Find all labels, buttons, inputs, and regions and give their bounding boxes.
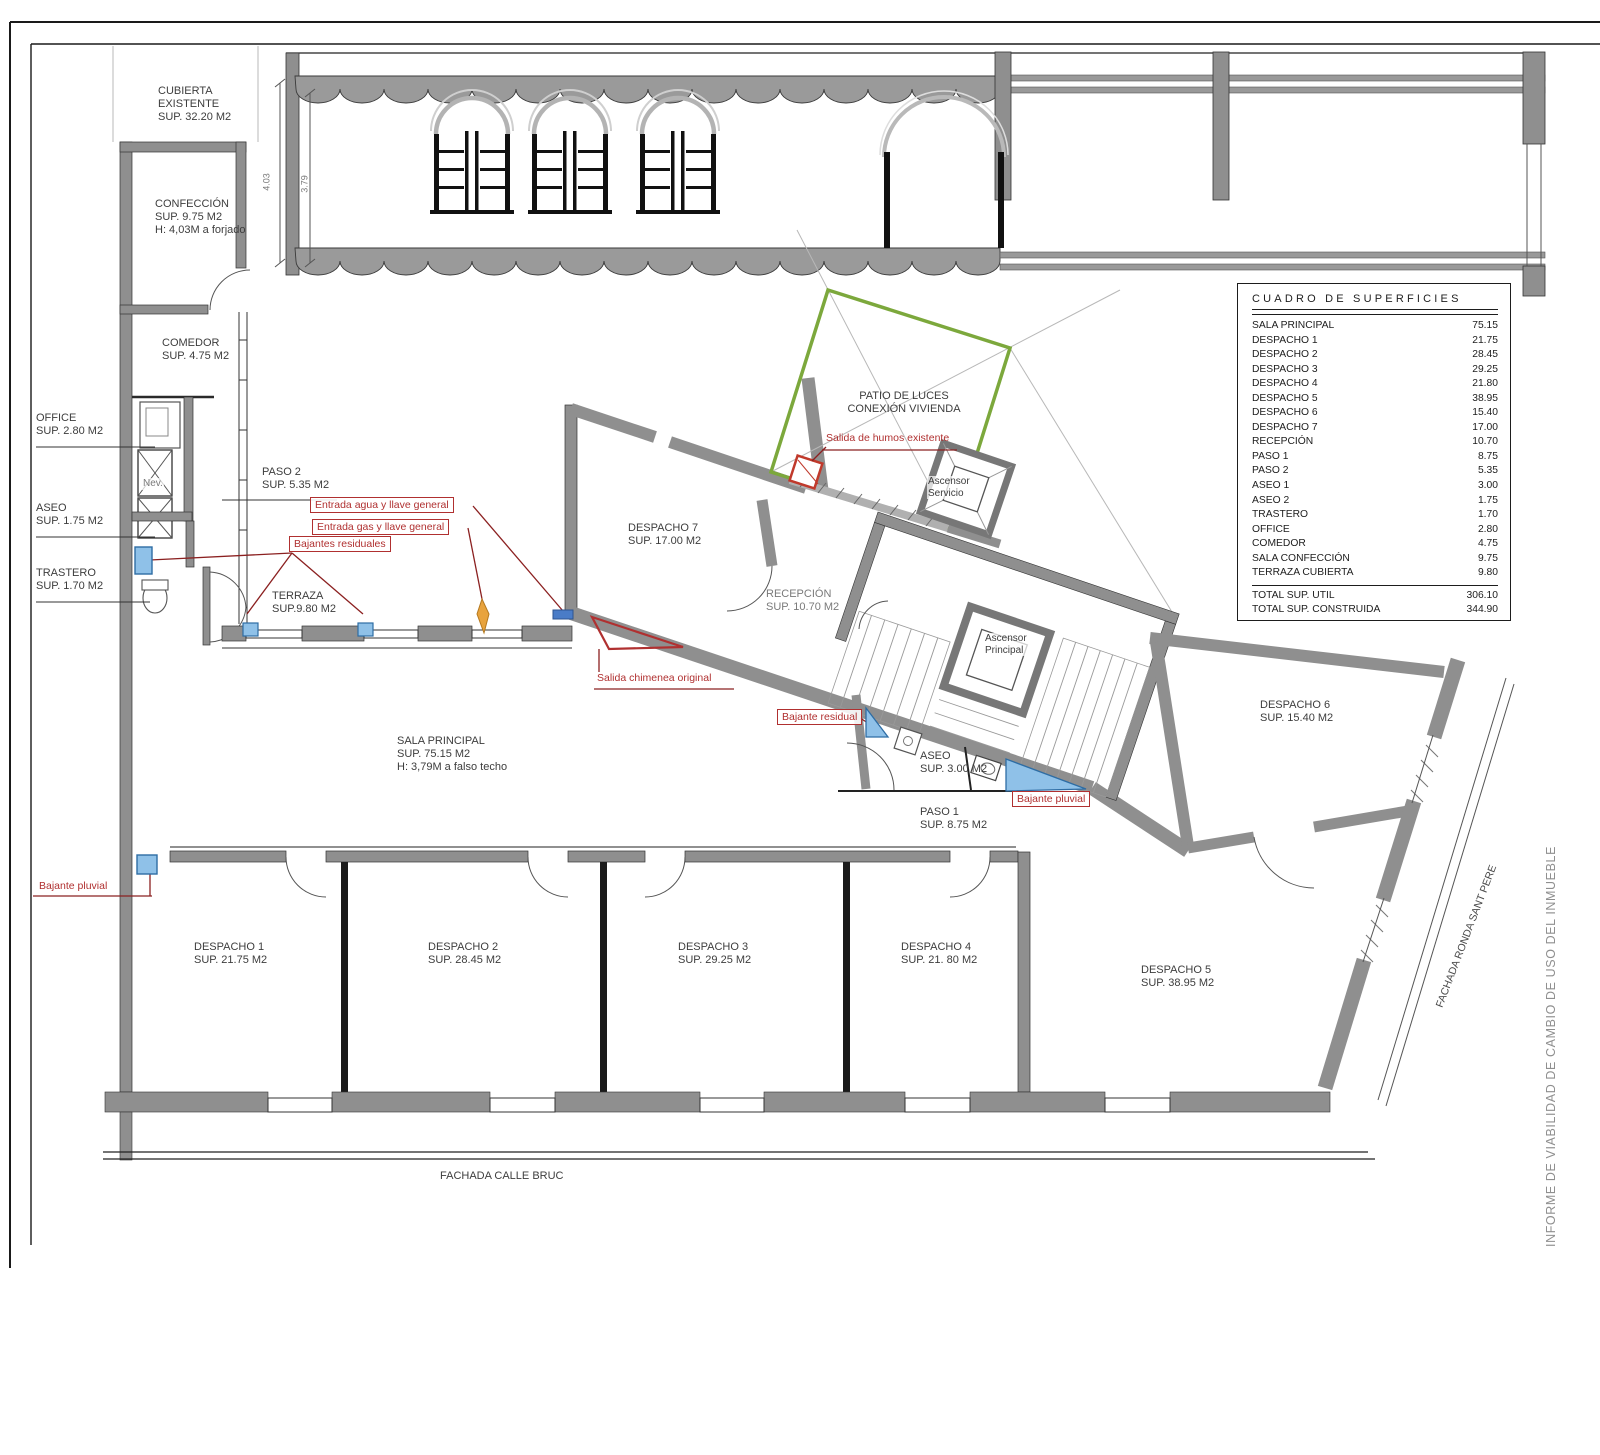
table-row-name: PASO 1 (1252, 450, 1288, 465)
sheet-side-note: INFORME DE VIABILIDAD DE CAMBIO DE USO D… (1544, 742, 1561, 1247)
annotation-bajante-residual: Bajante residual (777, 709, 862, 725)
room-label-cubierta: CUBIERTA EXISTENTE SUP. 32.20 M2 (158, 85, 231, 124)
annotation-salida-chimenea: Salida chimenea original (597, 672, 711, 684)
room-label-aseo-left: ASEO SUP. 1.75 M2 (36, 502, 103, 528)
table-row-value: 5.35 (1478, 464, 1498, 479)
table-total-util: TOTAL SUP. UTIL 306.10 (1252, 589, 1498, 604)
annotation-entrada-gas: Entrada gas y llave general (312, 519, 449, 535)
table-row-name: TERRAZA CUBIERTA (1252, 566, 1353, 581)
table-row-name: DESPACHO 7 (1252, 421, 1318, 436)
table-row: PASO 25.35 (1252, 464, 1498, 479)
table-row-value: 29.25 (1472, 363, 1498, 378)
annotation-salida-humos: Salida de humos existente (826, 432, 949, 444)
room-label-despacho6: DESPACHO 6 SUP. 15.40 M2 (1260, 699, 1333, 725)
bajante-marker-pluvial-left (137, 855, 157, 874)
table-row: SALA CONFECCIÓN9.75 (1252, 552, 1498, 567)
annotation-bajante-pluvial-right: Bajante pluvial (1012, 791, 1090, 807)
planter-marker-1 (243, 623, 258, 636)
table-row-value: 4.75 (1478, 537, 1498, 552)
bruc-facade (103, 1092, 1375, 1160)
gas-inlet-marker (477, 599, 489, 633)
room-label-paso2: PASO 2 SUP. 5.35 M2 (262, 466, 329, 492)
table-row-name: ASEO 2 (1252, 494, 1289, 509)
surface-table-rule (1252, 309, 1498, 315)
table-row-value: 28.45 (1472, 348, 1498, 363)
table-row: ASEO 21.75 (1252, 494, 1498, 509)
table-row: SALA PRINCIPAL75.15 (1252, 319, 1498, 334)
room-label-despacho7: DESPACHO 7 SUP. 17.00 M2 (628, 522, 701, 548)
table-row: DESPACHO 228.45 (1252, 348, 1498, 363)
table-row-value: 2.80 (1478, 523, 1498, 538)
table-row-name: DESPACHO 4 (1252, 377, 1318, 392)
arched-window-2 (528, 90, 612, 214)
label-ascensor-principal: Ascensor Principal (984, 633, 1028, 656)
table-row: PASO 18.75 (1252, 450, 1498, 465)
table-row: RECEPCIÓN10.70 (1252, 435, 1498, 450)
table-row-value: 21.80 (1472, 377, 1498, 392)
table-row-value: 9.75 (1478, 552, 1498, 567)
dimension-4-03: 4.03 (261, 161, 273, 191)
room-label-despacho5: DESPACHO 5 SUP. 38.95 M2 (1141, 964, 1214, 990)
table-row: OFFICE2.80 (1252, 523, 1498, 538)
room-label-terraza: TERRAZA SUP.9.80 M2 (272, 590, 336, 616)
facade-label-bruc: FACHADA CALLE BRUC (440, 1170, 563, 1183)
table-row: DESPACHO 538.95 (1252, 392, 1498, 407)
arched-window-3 (636, 90, 720, 214)
table-total-construida: TOTAL SUP. CONSTRUIDA 344.90 (1252, 603, 1498, 618)
room-label-despacho2: DESPACHO 2 SUP. 28.45 M2 (428, 941, 501, 967)
annotation-entrada-agua: Entrada agua y llave general (310, 497, 454, 513)
room-label-office: OFFICE SUP. 2.80 M2 (36, 412, 103, 438)
table-row-value: 15.40 (1472, 406, 1498, 421)
table-row: DESPACHO 615.40 (1252, 406, 1498, 421)
table-row-name: SALA CONFECCIÓN (1252, 552, 1350, 567)
surface-table-separator (1252, 585, 1498, 586)
room-label-comedor: COMEDOR SUP. 4.75 M2 (162, 337, 229, 363)
room-label-despacho3: DESPACHO 3 SUP. 29.25 M2 (678, 941, 751, 967)
planter-marker-2 (358, 623, 373, 636)
table-row-name: OFFICE (1252, 523, 1290, 538)
table-row: DESPACHO 329.25 (1252, 363, 1498, 378)
table-row: DESPACHO 421.80 (1252, 377, 1498, 392)
table-row-name: DESPACHO 5 (1252, 392, 1318, 407)
room-label-recepcion: RECEPCIÓN SUP. 10.70 M2 (766, 588, 839, 614)
arch-doorway (880, 91, 1008, 248)
annotation-bajantes-residuales: Bajantes residuales (289, 536, 391, 552)
dimension-3-79: 3.79 (299, 163, 311, 193)
table-row-name: TRASTERO (1252, 508, 1308, 523)
table-row-name: DESPACHO 6 (1252, 406, 1318, 421)
room-label-aseo-right: ASEO SUP. 3.00 M2 (920, 750, 987, 776)
arched-window-1 (430, 90, 514, 214)
table-row-name: DESPACHO 3 (1252, 363, 1318, 378)
table-row: DESPACHO 717.00 (1252, 421, 1498, 436)
table-row: TERRAZA CUBIERTA9.80 (1252, 566, 1498, 581)
sheet-frame (10, 22, 1600, 1268)
table-row-value: 75.15 (1472, 319, 1498, 334)
main-elevator (944, 607, 1050, 713)
table-row: ASEO 13.00 (1252, 479, 1498, 494)
label-nevera: Nev. (142, 478, 164, 490)
room-label-confeccion: CONFECCIÓN SUP. 9.75 M2 H: 4,03M a forja… (155, 198, 246, 237)
surface-table: CUADRO DE SUPERFICIES SALA PRINCIPAL75.1… (1237, 283, 1511, 621)
table-row-value: 17.00 (1472, 421, 1498, 436)
room-label-sala-principal: SALA PRINCIPAL SUP. 75.15 M2 H: 3,79M a … (397, 735, 507, 774)
table-row-value: 38.95 (1472, 392, 1498, 407)
room-label-patio: PATIO DE LUCES CONEXIÓN VIVIENDA (826, 390, 982, 416)
surface-table-title: CUADRO DE SUPERFICIES (1252, 293, 1498, 305)
table-row: DESPACHO 121.75 (1252, 334, 1498, 349)
table-row: TRASTERO1.70 (1252, 508, 1498, 523)
label-ascensor-servicio: Ascensor Servicio (927, 476, 971, 499)
room-label-despacho4: DESPACHO 4 SUP. 21. 80 M2 (901, 941, 977, 967)
room-label-despacho1: DESPACHO 1 SUP. 21.75 M2 (194, 941, 267, 967)
terrace (222, 626, 572, 648)
vault-band-top (295, 76, 1000, 103)
water-inlet-marker (553, 610, 573, 619)
table-row-name: DESPACHO 2 (1252, 348, 1318, 363)
top-elevation (113, 46, 1545, 296)
surface-table-rows: SALA PRINCIPAL75.15DESPACHO 121.75DESPAC… (1252, 319, 1498, 581)
bajante-marker-trastero (135, 547, 152, 574)
table-row-value: 10.70 (1472, 435, 1498, 450)
office-door-arcs (286, 857, 990, 897)
office-row-walls (170, 847, 1030, 1092)
room-label-paso1: PASO 1 SUP. 8.75 M2 (920, 806, 987, 832)
table-row-name: RECEPCIÓN (1252, 435, 1313, 450)
table-row-name: DESPACHO 1 (1252, 334, 1318, 349)
table-row-name: ASEO 1 (1252, 479, 1289, 494)
table-row-value: 3.00 (1478, 479, 1498, 494)
table-row-name: PASO 2 (1252, 464, 1288, 479)
central-walls (565, 378, 1188, 851)
table-row-value: 1.75 (1478, 494, 1498, 509)
floorplan-sheet: CUBIERTA EXISTENTE SUP. 32.20 M2 CONFECC… (0, 0, 1600, 1455)
table-row-name: SALA PRINCIPAL (1252, 319, 1334, 334)
table-row: COMEDOR4.75 (1252, 537, 1498, 552)
table-row-value: 9.80 (1478, 566, 1498, 581)
vault-band-bottom (295, 248, 1000, 275)
table-row-value: 8.75 (1478, 450, 1498, 465)
room-label-trastero: TRASTERO SUP. 1.70 M2 (36, 567, 103, 593)
table-row-value: 21.75 (1472, 334, 1498, 349)
table-row-name: COMEDOR (1252, 537, 1306, 552)
table-row-value: 1.70 (1478, 508, 1498, 523)
annotation-bajante-pluvial-left: Bajante pluvial (39, 880, 107, 892)
